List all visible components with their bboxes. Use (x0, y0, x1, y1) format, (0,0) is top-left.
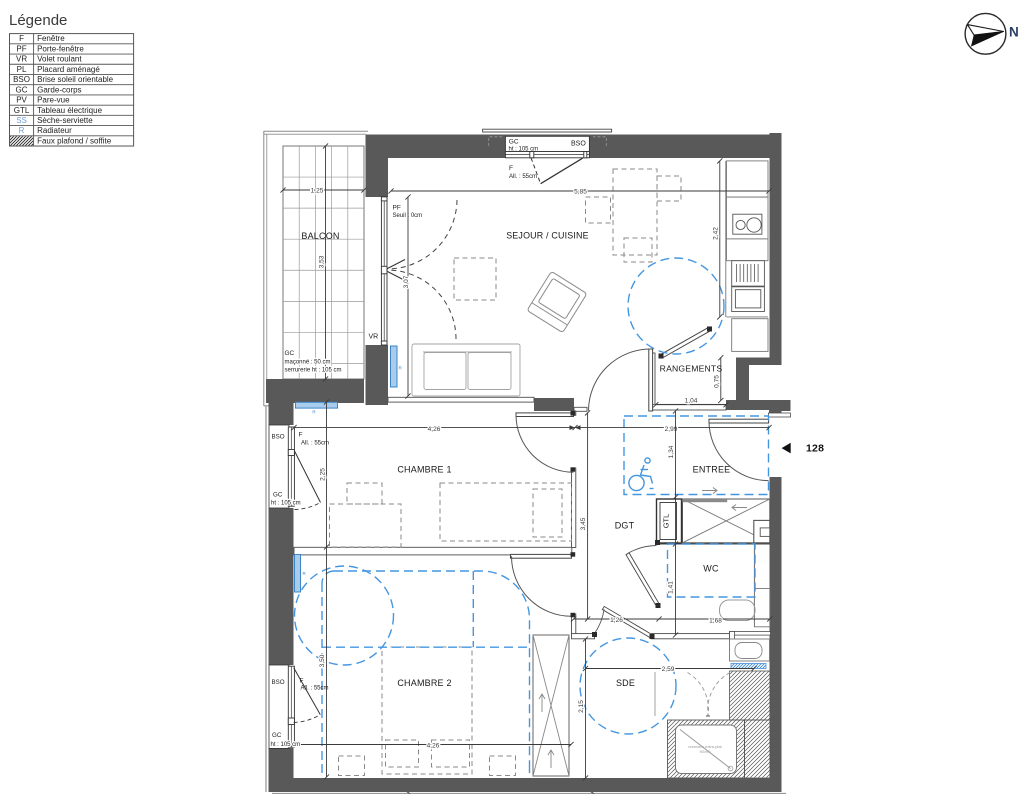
svg-text:3,50: 3,50 (319, 654, 326, 667)
svg-text:BALCON: BALCON (301, 231, 339, 241)
svg-text:128: 128 (806, 443, 824, 455)
svg-text:ht : 105 cm: ht : 105 cm (509, 147, 539, 153)
svg-text:Porte-fenêtre: Porte-fenêtre (37, 44, 84, 53)
svg-text:CHAMBRE 1: CHAMBRE 1 (397, 465, 451, 475)
svg-text:maçonné : 50 cm: maçonné : 50 cm (285, 360, 331, 366)
svg-text:GTL: GTL (14, 106, 30, 115)
svg-text:BSO: BSO (13, 75, 30, 84)
svg-text:BSO: BSO (571, 141, 586, 148)
svg-text:2,15: 2,15 (578, 700, 585, 713)
svg-text:GC: GC (273, 492, 283, 499)
svg-text:All. : 55cm: All. : 55cm (509, 174, 537, 180)
svg-text:4,26: 4,26 (428, 426, 441, 433)
svg-text:PF: PF (16, 44, 26, 53)
svg-text:SS: SS (16, 116, 27, 125)
svg-text:SDE: SDE (616, 678, 635, 688)
svg-text:5,85: 5,85 (574, 188, 587, 195)
svg-text:Fenêtre: Fenêtre (37, 34, 65, 43)
svg-text:4,26: 4,26 (427, 743, 440, 750)
svg-text:1,68: 1,68 (709, 617, 722, 624)
svg-text:3,07: 3,07 (403, 275, 410, 288)
svg-text:Brise soleil orientable: Brise soleil orientable (37, 75, 114, 84)
svg-text:serrurerie ht : 105 cm: serrurerie ht : 105 cm (285, 368, 342, 374)
svg-text:1,26: 1,26 (610, 617, 623, 624)
svg-text:Tableau électrique: Tableau électrique (37, 106, 102, 115)
svg-text:R: R (19, 126, 25, 135)
svg-text:F: F (19, 34, 24, 43)
svg-text:ht : 105 cm: ht : 105 cm (271, 501, 301, 507)
svg-text:1,04: 1,04 (685, 398, 698, 405)
svg-text:PV: PV (16, 96, 27, 105)
svg-text:VR: VR (369, 334, 379, 341)
svg-text:F: F (299, 432, 303, 439)
svg-text:PF: PF (393, 205, 401, 212)
svg-text:GC: GC (509, 138, 519, 145)
svg-text:F: F (509, 165, 513, 172)
svg-text:Légende: Légende (9, 12, 67, 29)
svg-text:2,42: 2,42 (712, 227, 719, 240)
svg-text:Pare-vue: Pare-vue (37, 96, 70, 105)
svg-text:BSO: BSO (272, 434, 285, 441)
svg-text:Volet roulant: Volet roulant (37, 55, 82, 64)
svg-text:SEJOUR / CUISINE: SEJOUR / CUISINE (506, 231, 589, 241)
svg-text:2,25: 2,25 (320, 468, 327, 481)
svg-text:3,45: 3,45 (580, 517, 587, 530)
svg-text:F: F (300, 678, 304, 685)
svg-text:All. : 55cm: All. : 55cm (301, 686, 329, 692)
svg-text:ENTREE: ENTREE (693, 465, 731, 475)
svg-text:Seuil : 0cm: Seuil : 0cm (393, 213, 423, 219)
svg-text:DGT: DGT (615, 521, 635, 531)
svg-text:WC: WC (703, 564, 719, 574)
svg-text:Sèche-serviette: Sèche-serviette (37, 116, 93, 125)
svg-text:GC: GC (16, 85, 28, 94)
svg-text:RANGEMENTS: RANGEMENTS (660, 364, 723, 374)
svg-text:Radiateur: Radiateur (37, 126, 72, 135)
svg-text:GC: GC (285, 350, 295, 357)
svg-text:2,59: 2,59 (662, 666, 675, 673)
svg-text:Placard aménagé: Placard aménagé (37, 65, 100, 74)
svg-text:GTL: GTL (662, 514, 671, 529)
svg-text:1,34: 1,34 (668, 445, 675, 458)
svg-text:Garde-corps: Garde-corps (37, 85, 81, 94)
svg-text:1,25: 1,25 (311, 188, 324, 195)
svg-text:BSO: BSO (272, 679, 285, 686)
svg-text:PL: PL (17, 65, 27, 74)
svg-text:Faux plafond / soffite: Faux plafond / soffite (37, 136, 112, 145)
svg-text:0,75: 0,75 (713, 375, 720, 388)
svg-text:3,53: 3,53 (319, 255, 326, 268)
svg-text:90x90: 90x90 (700, 749, 712, 754)
svg-text:ht : 105 cm: ht : 105 cm (271, 742, 301, 748)
svg-text:VR: VR (16, 55, 27, 64)
svg-text:GC: GC (272, 732, 282, 739)
svg-text:CHAMBRE 2: CHAMBRE 2 (397, 678, 451, 688)
svg-text:N: N (1009, 25, 1019, 40)
svg-text:1,41: 1,41 (668, 581, 675, 594)
svg-text:All. : 55cm: All. : 55cm (301, 441, 329, 447)
